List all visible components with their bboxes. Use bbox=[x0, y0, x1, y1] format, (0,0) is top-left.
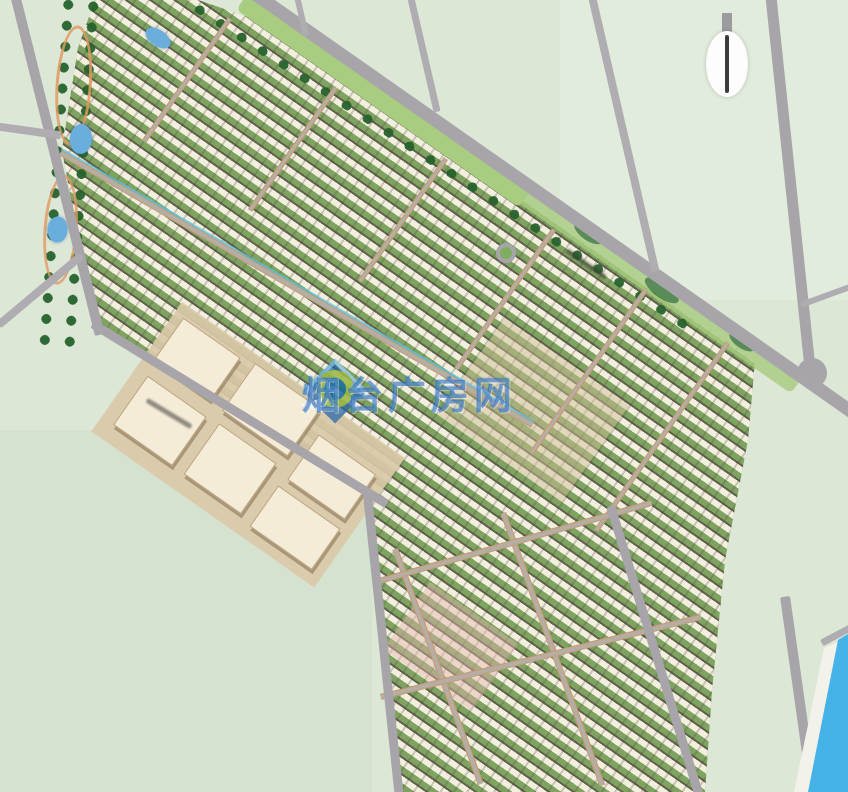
watermark: 烟台广房网 bbox=[302, 352, 622, 432]
north-arrow-needle bbox=[725, 35, 729, 93]
north-arrow-icon bbox=[706, 31, 748, 97]
north-arrow-post bbox=[722, 13, 732, 32]
map-canvas: 烟台广房网 bbox=[0, 0, 848, 792]
roundabout bbox=[496, 243, 516, 263]
watermark-text: 烟台广房网 bbox=[302, 365, 517, 420]
road-junction bbox=[797, 358, 827, 388]
roundabout-green bbox=[500, 247, 512, 259]
pond bbox=[69, 123, 93, 154]
